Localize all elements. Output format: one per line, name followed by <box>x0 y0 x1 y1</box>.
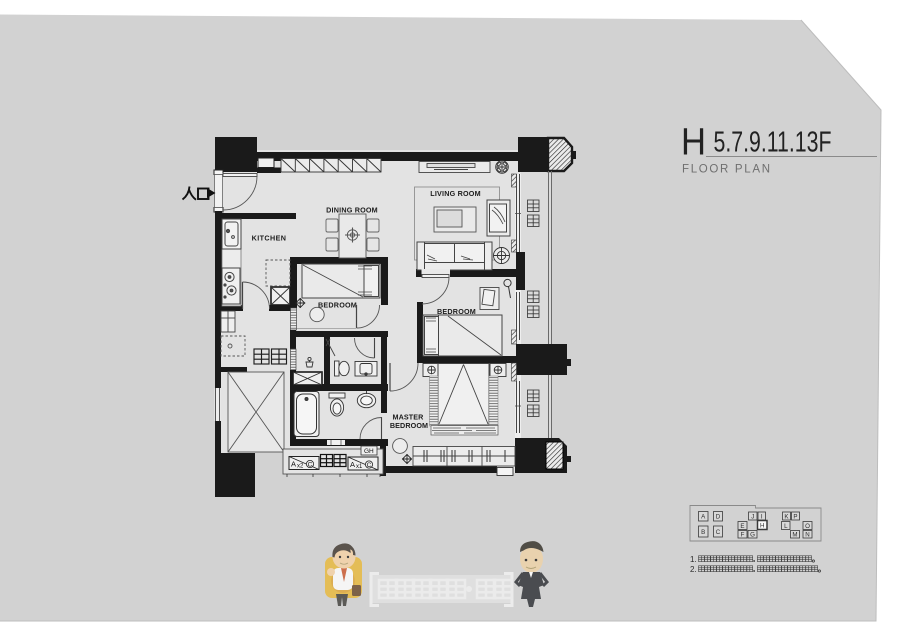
svg-text:J: J <box>751 513 754 520</box>
svg-text:2.: 2. <box>690 565 697 574</box>
svg-text:A: A <box>350 460 355 469</box>
svg-text:5.7.9.11.13F: 5.7.9.11.13F <box>714 127 832 159</box>
svg-text:E: E <box>740 523 744 530</box>
svg-text:D: D <box>716 514 721 521</box>
svg-text:H: H <box>681 122 706 164</box>
svg-text:H: H <box>760 522 764 529</box>
svg-text:DINING ROOM: DINING ROOM <box>326 206 378 215</box>
svg-text:C: C <box>716 529 721 536</box>
svg-text:GH: GH <box>364 448 374 455</box>
svg-text:KITCHEN: KITCHEN <box>252 234 287 243</box>
svg-text:I: I <box>761 513 763 520</box>
svg-text:B: B <box>701 529 705 536</box>
svg-text:BEDROOM: BEDROOM <box>390 421 428 430</box>
svg-text:FLOOR PLAN: FLOOR PLAN <box>682 164 770 176</box>
svg-text:x2: x2 <box>297 464 304 470</box>
svg-text:P: P <box>793 513 797 520</box>
svg-text:BEDROOM: BEDROOM <box>437 307 476 316</box>
svg-text:C: C <box>308 462 313 469</box>
svg-text:C: C <box>367 462 372 469</box>
svg-text:F: F <box>741 532 745 539</box>
svg-text:BEDROOM: BEDROOM <box>318 301 357 310</box>
svg-text:LIVING ROOM: LIVING ROOM <box>430 189 481 198</box>
svg-text:A: A <box>291 460 296 469</box>
svg-text:N: N <box>805 532 809 539</box>
svg-text:L: L <box>784 523 788 530</box>
svg-text:1.: 1. <box>690 555 697 564</box>
svg-text:M: M <box>792 532 797 539</box>
svg-text:O: O <box>805 523 810 530</box>
svg-text:G: G <box>750 532 755 539</box>
svg-text:x1: x1 <box>356 464 363 470</box>
